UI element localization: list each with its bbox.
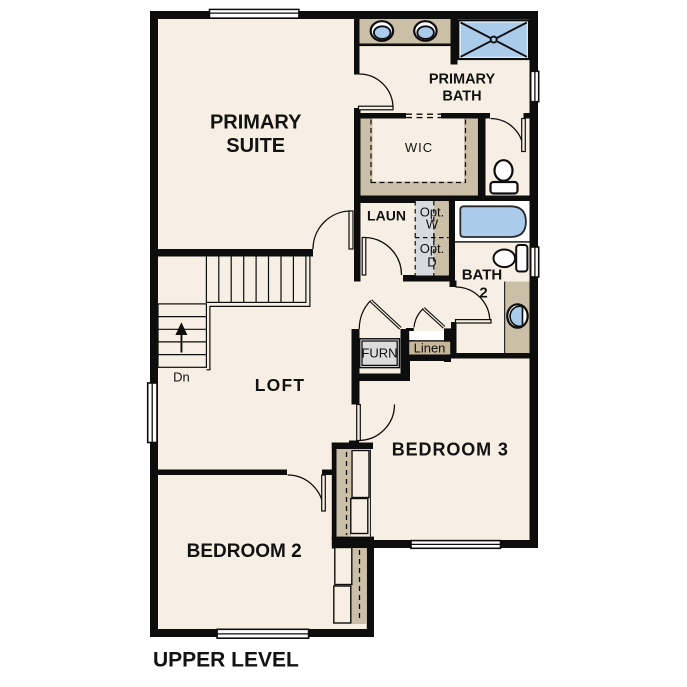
svg-text:PRIMARY: PRIMARY <box>429 72 496 88</box>
svg-text:SUITE: SUITE <box>226 135 285 157</box>
svg-text:LAUN: LAUN <box>367 207 406 223</box>
svg-text:PRIMARY: PRIMARY <box>210 112 302 134</box>
svg-text:BATH: BATH <box>442 88 481 104</box>
svg-text:BATH: BATH <box>462 267 503 284</box>
svg-text:Linen: Linen <box>414 341 446 356</box>
svg-text:Dn: Dn <box>173 369 190 384</box>
svg-text:UPPER LEVEL: UPPER LEVEL <box>153 649 299 672</box>
svg-text:WIC: WIC <box>405 140 433 155</box>
svg-text:LOFT: LOFT <box>255 375 305 395</box>
svg-text:FURN: FURN <box>361 346 397 361</box>
svg-text:2: 2 <box>479 285 487 302</box>
svg-text:BEDROOM 3: BEDROOM 3 <box>392 440 509 460</box>
svg-text:W: W <box>426 217 439 232</box>
svg-text:BEDROOM 2: BEDROOM 2 <box>187 541 302 562</box>
svg-text:D: D <box>427 255 436 270</box>
